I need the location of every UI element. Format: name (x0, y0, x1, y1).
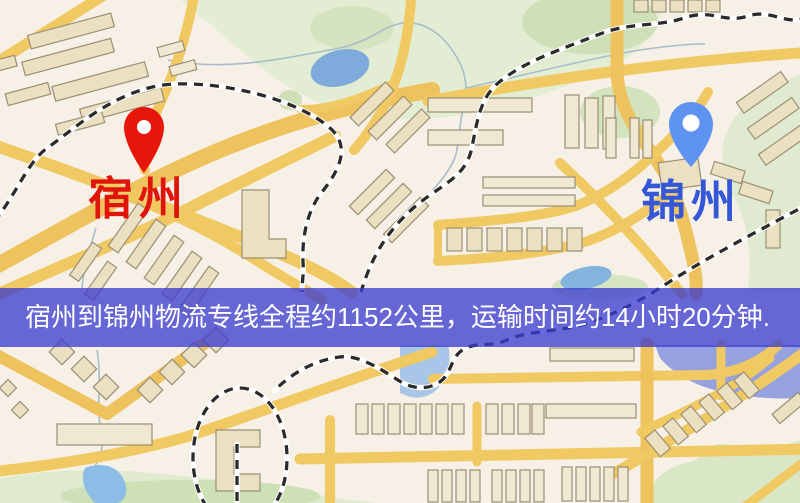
destination-city-label: 锦州 (641, 179, 741, 224)
map-pin-hole (137, 120, 151, 134)
route-info-text: 宿州到锦州物流专线全程约1152公里，运输时间约14小时20分钟. (25, 302, 770, 332)
map-background (0, 0, 800, 503)
map-pin-hole (683, 115, 700, 132)
logistics-route-map: 宿州 锦州 宿州到锦州物流专线全程约1152公里，运输时间约14小时20分钟. (0, 0, 800, 503)
route-info-banner: 宿州到锦州物流专线全程约1152公里，运输时间约14小时20分钟. (0, 288, 800, 347)
origin-city-label: 宿州 (88, 176, 188, 221)
